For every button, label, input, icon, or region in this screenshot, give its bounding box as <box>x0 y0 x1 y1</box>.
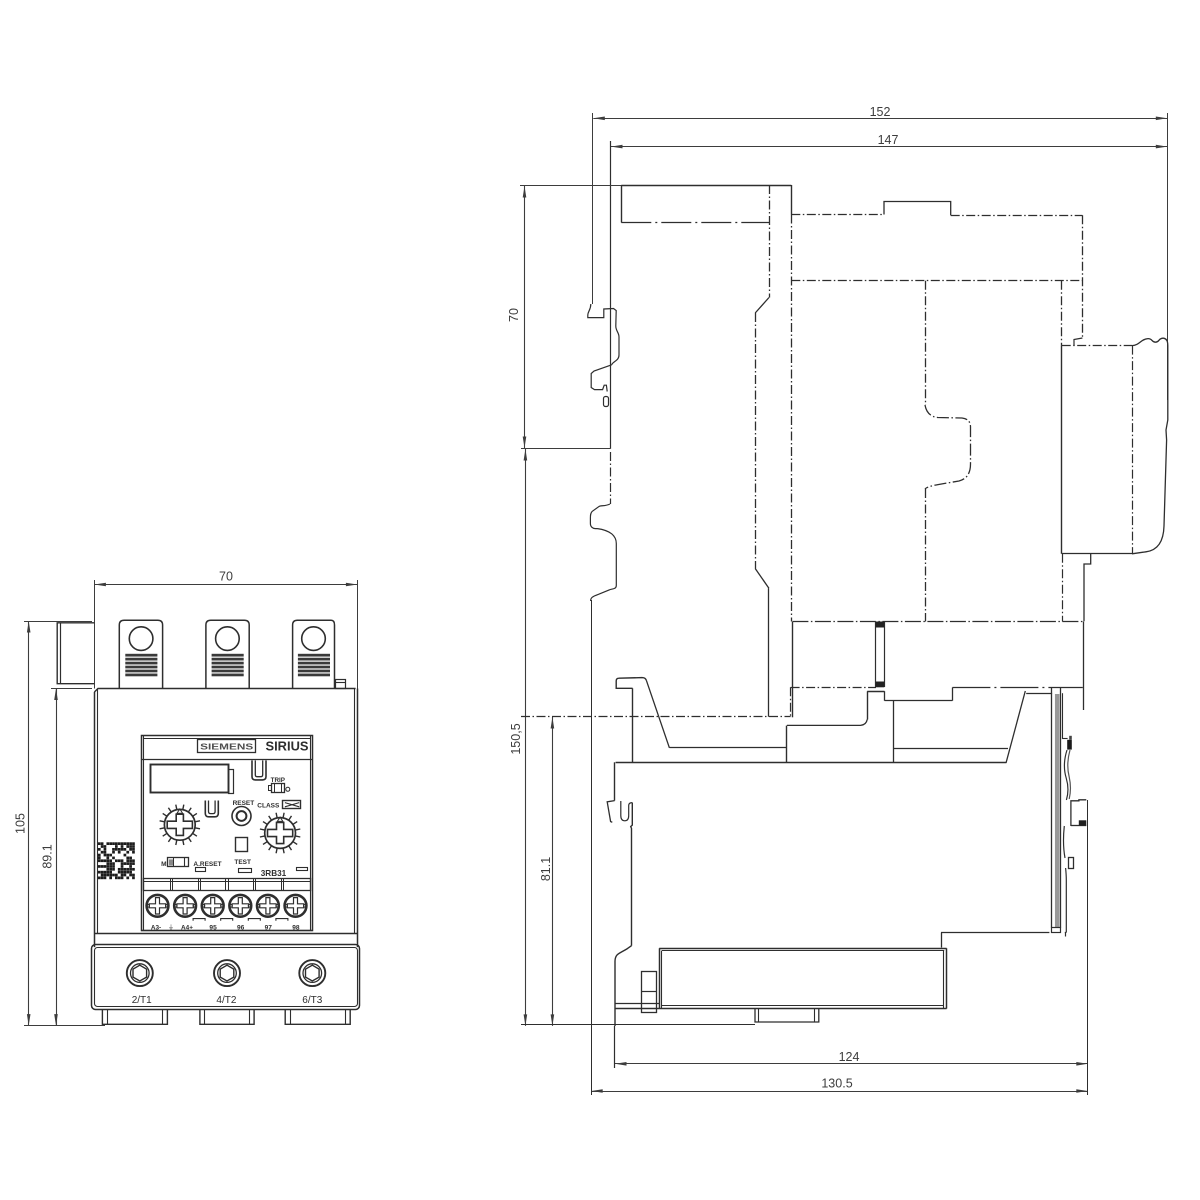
svg-text:4/T2: 4/T2 <box>216 995 236 1006</box>
svg-text:6/T3: 6/T3 <box>302 995 322 1006</box>
svg-text:CLASS: CLASS <box>257 802 280 809</box>
svg-text:89.1: 89.1 <box>41 844 55 868</box>
svg-text:SIEMENS: SIEMENS <box>200 742 253 752</box>
svg-text:SIRIUS: SIRIUS <box>266 740 309 754</box>
svg-text:2/T1: 2/T1 <box>132 995 152 1006</box>
svg-text:147: 147 <box>878 133 899 147</box>
svg-text:70: 70 <box>219 570 233 584</box>
svg-text:TRIP: TRIP <box>271 777 285 784</box>
svg-text:M: M <box>161 861 166 868</box>
svg-text:124: 124 <box>839 1050 860 1064</box>
svg-text:70: 70 <box>507 308 521 322</box>
svg-text:150,5: 150,5 <box>509 723 523 754</box>
svg-text:3RB31: 3RB31 <box>261 869 287 878</box>
svg-text:81.1: 81.1 <box>539 857 553 881</box>
svg-text:152: 152 <box>870 105 891 119</box>
svg-text:130.5: 130.5 <box>821 1077 852 1091</box>
svg-text:105: 105 <box>14 813 28 834</box>
svg-text:TEST: TEST <box>234 859 251 866</box>
